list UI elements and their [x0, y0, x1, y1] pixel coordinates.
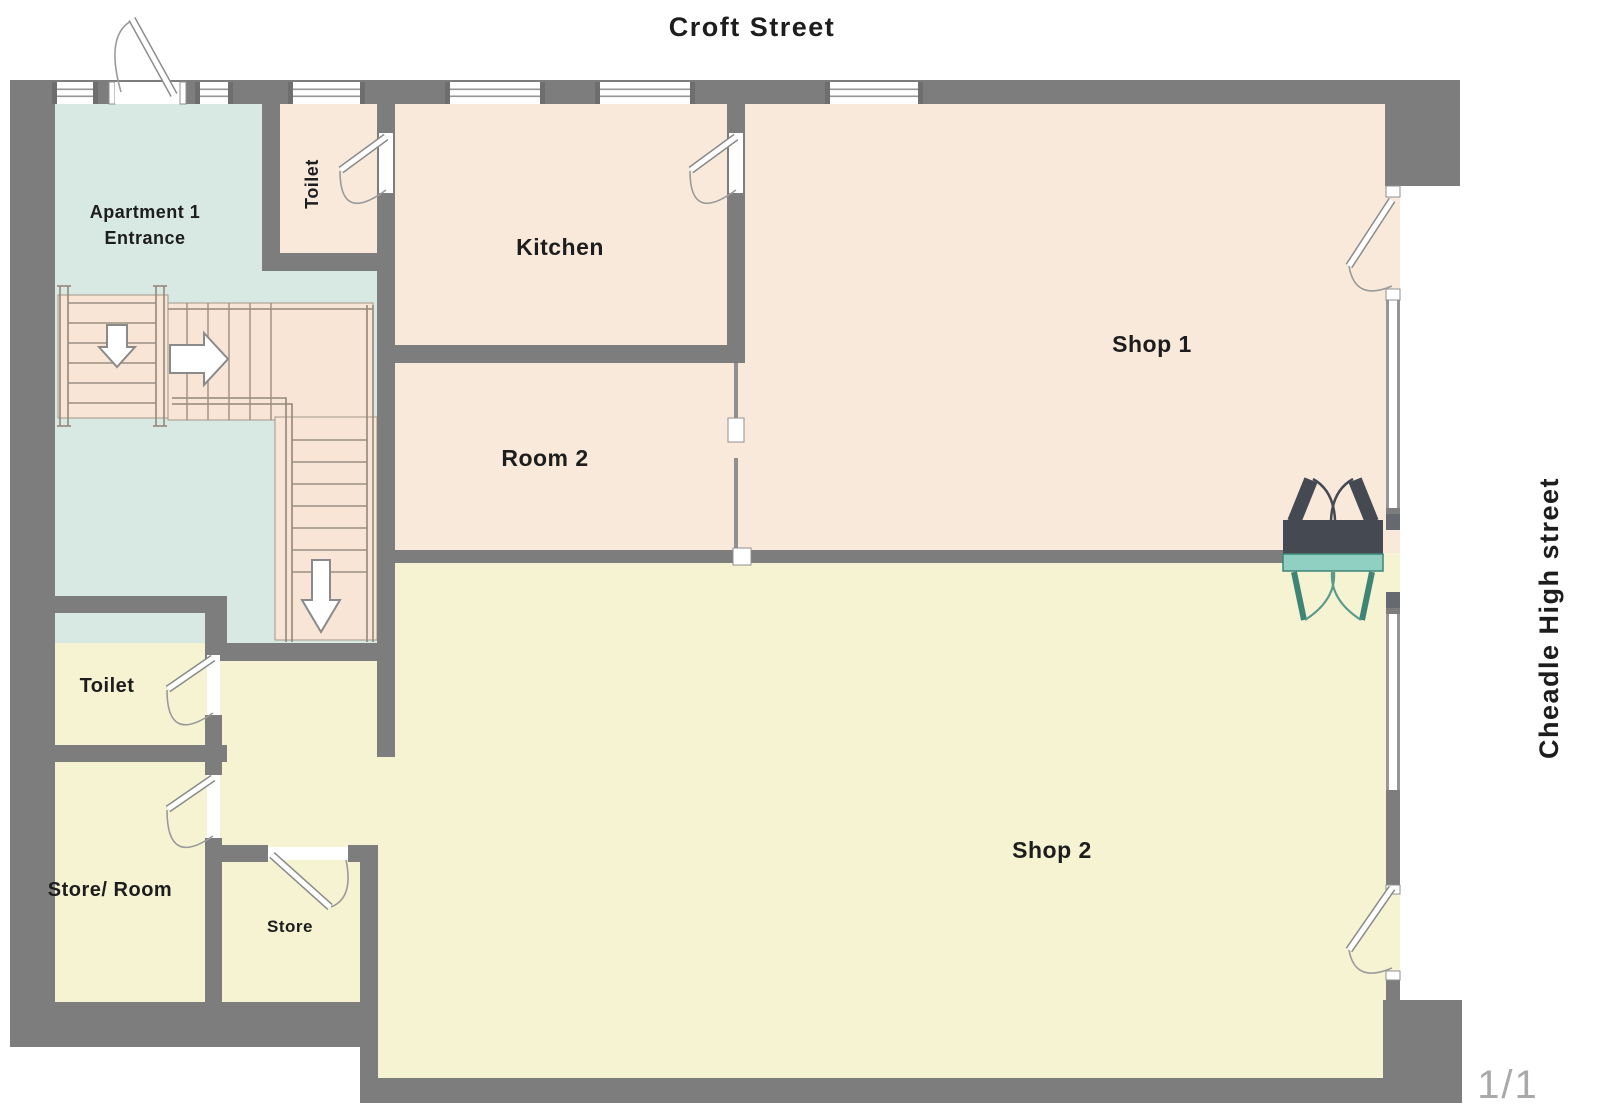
label-store: Store — [267, 917, 313, 936]
page-indicator: 1/1 — [1477, 1063, 1539, 1107]
room-shop2 — [377, 553, 1400, 1083]
label-room2: Room 2 — [501, 445, 588, 471]
label-store-room: Store/ Room — [48, 879, 172, 901]
label-apartment-line2: Entrance — [104, 228, 185, 248]
street-label-croft: Croft Street — [669, 12, 836, 42]
room-shop1-kitchen-room2 — [377, 104, 1400, 553]
label-shop2: Shop 2 — [1012, 837, 1092, 863]
label-toilet-top: Toilet — [302, 159, 322, 209]
floor-plan-page: Croft Street Cheadle High street Apartme… — [0, 0, 1600, 1116]
street-label-cheadle: Cheadle High street — [1534, 477, 1564, 759]
floor-plan-canvas: Croft Street Cheadle High street Apartme… — [0, 0, 1600, 1116]
label-kitchen: Kitchen — [516, 234, 604, 260]
label-shop1: Shop 1 — [1112, 331, 1192, 357]
room-left-yellow-block — [55, 613, 395, 1002]
room-toilet-top — [262, 104, 395, 253]
label-toilet-left: Toilet — [80, 675, 135, 697]
label-apartment-line1: Apartment 1 — [90, 202, 201, 222]
door-main-entrance — [109, 19, 186, 104]
